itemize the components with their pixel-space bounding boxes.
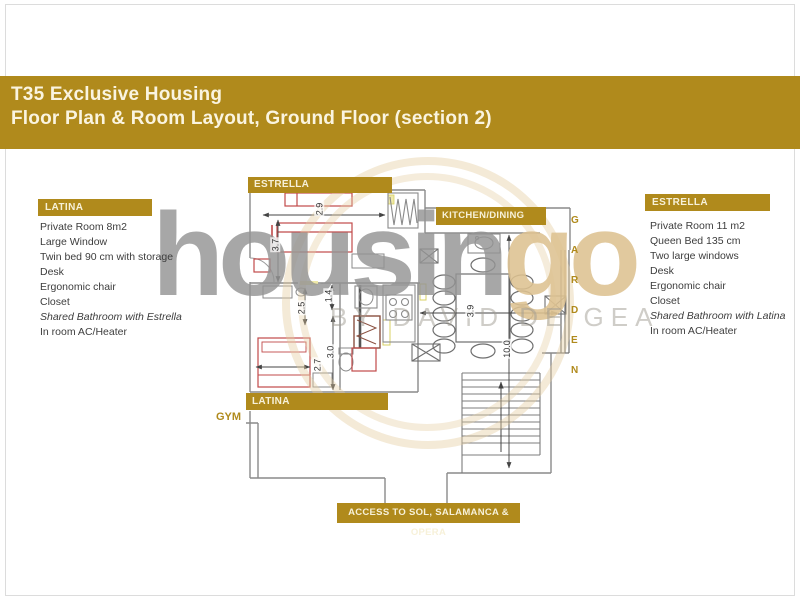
- dim-estrella-depth: 3.7: [270, 238, 280, 253]
- list-item: Twin bed 90 cm with storage: [40, 250, 182, 265]
- dim-bath-small: 2.5: [296, 301, 306, 316]
- dim-total-depth: 10.0: [502, 339, 512, 359]
- watermark-brand: housingo: [152, 196, 635, 314]
- plan-label-kitchen-dining: KITCHEN/DINING: [436, 207, 546, 225]
- plan-label-latina: LATINA: [246, 393, 388, 410]
- garden-letter: G: [571, 215, 579, 226]
- dim-estrella-width: 2.9: [314, 202, 324, 217]
- list-item: Ergonomic chair: [40, 280, 182, 295]
- floor-plan-page: T35 Exclusive Housing Floor Plan & Room …: [0, 0, 800, 600]
- list-item: In room AC/Heater: [40, 325, 182, 340]
- dim-bath-tiny: 1.4: [323, 289, 333, 304]
- list-item: Closet: [650, 294, 785, 309]
- dim-latina-width: 2.7: [312, 358, 322, 373]
- list-item: Private Room 8m2: [40, 220, 182, 235]
- garden-letter: D: [571, 305, 578, 316]
- plan-label-gym: GYM: [216, 411, 241, 423]
- list-item: Closet: [40, 295, 182, 310]
- plan-label-access: ACCESS TO SOL, SALAMANCA & OPERA: [337, 503, 520, 523]
- watermark-tagline: BY DAVID DE GEA: [330, 302, 659, 333]
- dim-dining-width: 3.9: [465, 304, 475, 319]
- estrella-panel-list: Private Room 11 m2 Queen Bed 135 cm Two …: [650, 219, 785, 339]
- garden-letter: A: [571, 245, 578, 256]
- list-item: Two large windows: [650, 249, 785, 264]
- list-item: Large Window: [40, 235, 182, 250]
- list-item: Shared Bathroom with Latina: [650, 309, 785, 324]
- dim-hall-depth: 3.0: [325, 345, 335, 360]
- list-item: Private Room 11 m2: [650, 219, 785, 234]
- list-item: Shared Bathroom with Estrella: [40, 310, 182, 325]
- list-item: In room AC/Heater: [650, 324, 785, 339]
- list-item: Desk: [40, 265, 182, 280]
- list-item: Queen Bed 135 cm: [650, 234, 785, 249]
- plan-label-estrella: ESTRELLA: [248, 177, 392, 193]
- list-item: Desk: [650, 264, 785, 279]
- list-item: Ergonomic chair: [650, 279, 785, 294]
- estrella-panel-badge: ESTRELLA: [645, 194, 770, 211]
- garden-letter: N: [571, 365, 578, 376]
- stairs: [462, 373, 540, 473]
- garden-letter: E: [571, 335, 578, 346]
- latina-panel-badge: LATINA: [38, 199, 152, 216]
- garden-letter: R: [571, 275, 578, 286]
- latina-panel-list: Private Room 8m2 Large Window Twin bed 9…: [40, 220, 182, 340]
